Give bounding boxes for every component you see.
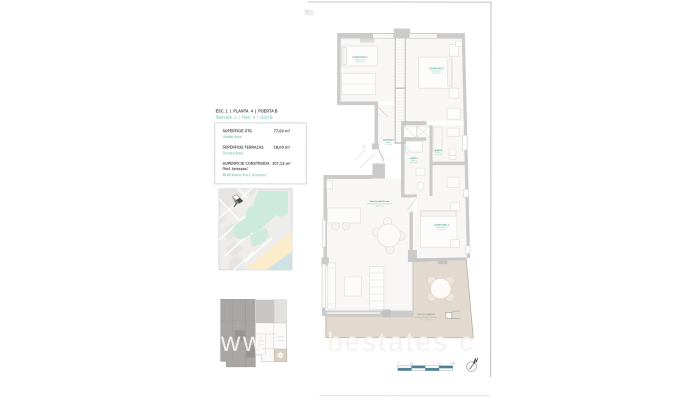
svg-text:4,22 m²: 4,22 m² (410, 161, 418, 164)
svg-text:Built Area /Incl. terrace/: Built Area /Incl. terrace/ (223, 172, 268, 177)
svg-text:9,10 m²: 9,10 m² (356, 60, 365, 63)
svg-text:TERRAZA CUBIERTA: TERRAZA CUBIERTA (417, 313, 435, 316)
svg-text:10,15 m²: 10,15 m² (433, 72, 441, 75)
svg-text:77,60 m²: 77,60 m² (274, 128, 291, 133)
svg-text:2,5M: 2,5M (450, 362, 455, 365)
svg-text:23,71 m²: 23,71 m² (375, 205, 383, 208)
svg-text:4,27 m²: 4,27 m² (385, 143, 393, 146)
svg-text:4,40 m²: 4,40 m² (435, 153, 443, 156)
svg-text:Staircase. 1 | Floor 4 |: Staircase. 1 | Floor 4 | Door B (216, 115, 273, 120)
svg-text:18,00 m²: 18,00 m² (274, 145, 291, 150)
svg-text:SUPERFICIE ÚTIL: SUPERFICIE ÚTIL (223, 128, 253, 133)
svg-text:/Incl. 50%/: /Incl. 50%/ (420, 319, 432, 321)
svg-text:Terrace Area: Terrace Area (223, 150, 244, 155)
svg-text:/Incl. terrazas/: /Incl. terrazas/ (223, 166, 249, 171)
svg-text:12,01 m²: 12,01 m² (437, 228, 445, 231)
svg-text:+1: +1 (362, 145, 366, 149)
svg-text:107,13 m²: 107,13 m² (272, 161, 291, 166)
svg-text:SUPERFICIE TERRAZAS: SUPERFICIE TERRAZAS (223, 145, 264, 150)
svg-text:Usable Area: Usable Area (223, 134, 243, 139)
svg-text:ESC. 1 | PLANTA 4 | PUERT: ESC. 1 | PLANTA 4 | PUERTA B (216, 108, 279, 113)
svg-text:bestates c: bestates c (327, 327, 475, 357)
svg-text:SUPERFICIE CONSTRUIDA: SUPERFICIE CONSTRUIDA (223, 161, 270, 166)
svg-text:ww: ww (220, 327, 265, 357)
